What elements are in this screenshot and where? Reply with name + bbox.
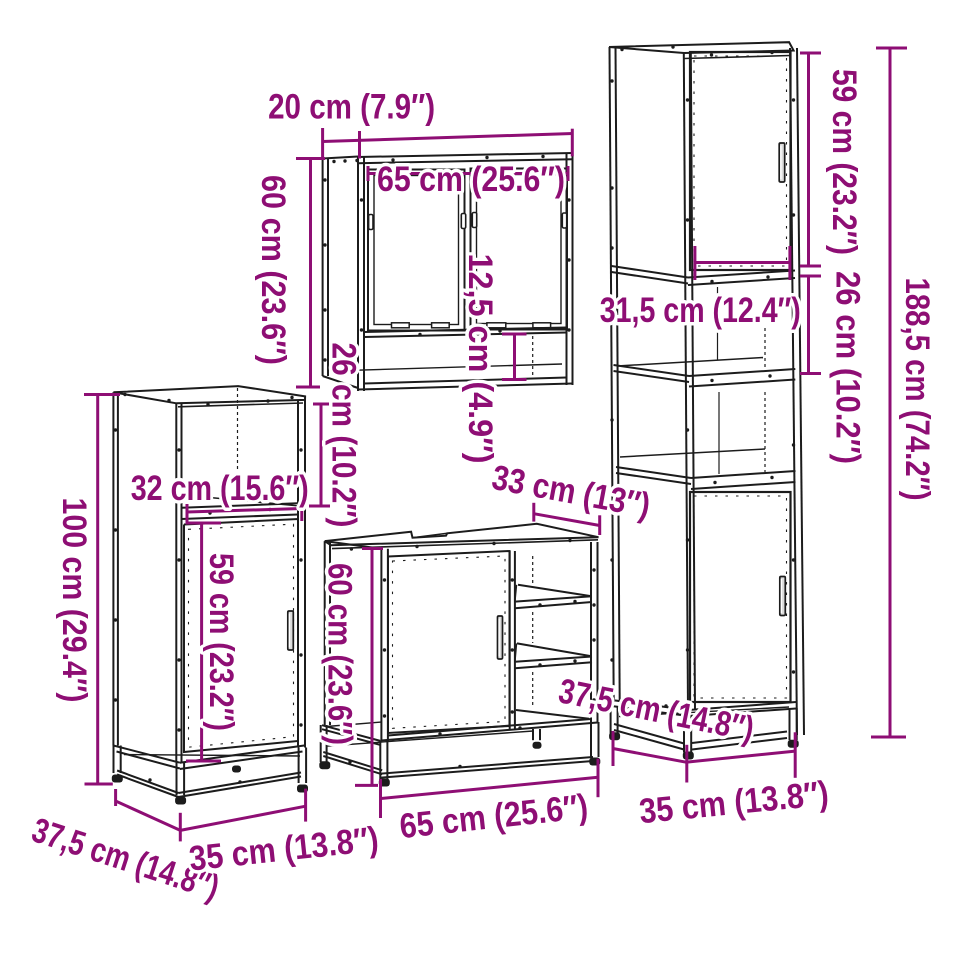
svg-text:59 cm (23.2″): 59 cm (23.2″) (202, 553, 240, 731)
svg-text:100 cm (29.4″): 100 cm (29.4″) (55, 498, 93, 703)
svg-text:60 cm (23.6″): 60 cm (23.6″) (321, 563, 359, 745)
svg-text:20 cm (7.9″): 20 cm (7.9″) (268, 88, 435, 127)
svg-text:60 cm (23.6″): 60 cm (23.6″) (254, 175, 292, 365)
svg-text:32 cm (15.6″): 32 cm (15.6″) (131, 469, 309, 508)
svg-text:31,5 cm (12.4″): 31,5 cm (12.4″) (600, 291, 801, 330)
svg-text:188,5 cm (74.2″): 188,5 cm (74.2″) (898, 278, 936, 501)
svg-text:26 cm (10.2″): 26 cm (10.2″) (325, 343, 363, 528)
svg-text:59 cm (23.2″): 59 cm (23.2″) (825, 69, 863, 255)
svg-text:26 cm (10.2″): 26 cm (10.2″) (829, 271, 867, 464)
svg-text:65 cm (25.6″): 65 cm (25.6″) (377, 160, 565, 199)
svg-text:12,5 cm (4.9″): 12,5 cm (4.9″) (461, 254, 499, 464)
